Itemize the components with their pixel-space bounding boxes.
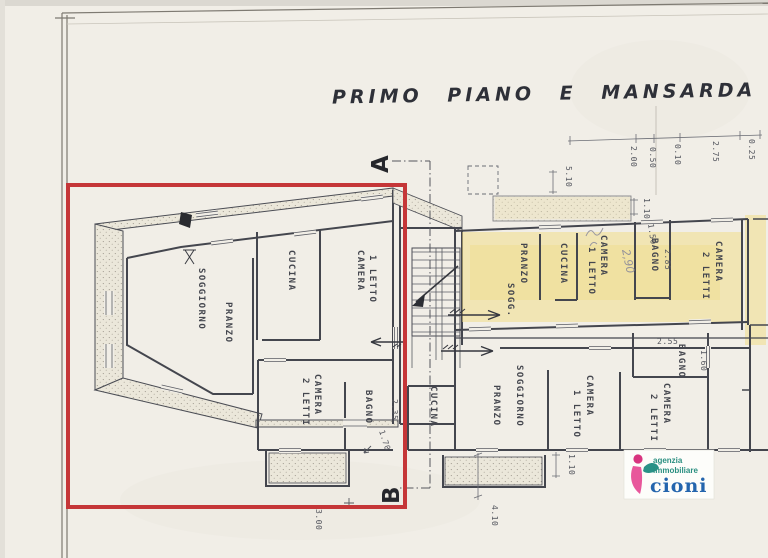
dim-balcony-width: 5.10 [564, 166, 573, 187]
room-label-camera1: CAMERA [598, 235, 608, 277]
dim-right: 4.10 [490, 505, 499, 526]
room-label-soggiorno: SOGGIORNO [196, 268, 206, 330]
dim-bagno-width: 2.35 [390, 399, 399, 420]
room-label-camera1: CAMERA [584, 375, 594, 417]
logo-text-cioni: cioni [650, 475, 708, 497]
room-label-camera1-sub: 1 LETTO [571, 390, 581, 438]
room-label-camera1: CAMERA [355, 250, 365, 292]
room-label-pranzo: PRANZO [518, 243, 528, 285]
room-label-camera2-sub: 2 LETTI [648, 394, 658, 442]
balcony-top-apartment [493, 196, 631, 221]
dim-top-4: 2.75 [711, 141, 720, 162]
dim-top-5: 0.25 [747, 139, 756, 160]
room-label-pranzo: PRANZO [223, 302, 233, 344]
logo-text-immobiliare: immobiliare [653, 466, 698, 475]
floor-plan-svg: PRIMO PIANO E MANSARDA [0, 0, 768, 558]
balcony-left-apartment [269, 453, 346, 483]
section-marker-b: B [379, 486, 405, 504]
room-label-bagno: BAGNO [363, 390, 373, 425]
dim-left: 3.00 [314, 509, 323, 530]
room-label-pranzo: PRANZO [491, 385, 501, 427]
dim-top-1: 2.00 [629, 146, 638, 167]
section-marker-a: A [368, 155, 394, 173]
logo-figure-head [633, 454, 642, 463]
room-label-camera1-sub: 1 LETTO [586, 247, 596, 295]
agency-logo: agenzia immobiliare cioni [624, 450, 714, 499]
room-label-sogg: SOGG. [505, 283, 515, 318]
room-label-camera2: CAMERA [312, 374, 322, 416]
scanned-floor-plan-sheet: PRIMO PIANO E MANSARDA [0, 0, 768, 558]
room-label-camera2: CAMERA [713, 241, 723, 283]
dim-balcony-depth: 1.10 [642, 198, 651, 219]
room-label-cucina: CUCINA [286, 250, 296, 292]
logo-text-agenzia: agenzia [653, 456, 683, 465]
dim-bagno: 2.85 [663, 249, 672, 270]
room-label-bagno: BAGNO [676, 344, 686, 379]
balcony-bottom-apartment [445, 457, 542, 485]
dim-top-2: 0.50 [648, 147, 657, 168]
room-label-cucina: CUCINA [428, 386, 438, 428]
dim-balcony: 1.10 [567, 454, 576, 475]
room-label-soggiorno: SOGGIORNO [514, 365, 524, 427]
dim-top-3: 0.10 [673, 144, 682, 165]
room-label-camera1-sub: 1 LETTO [367, 255, 377, 303]
room-label-camera2: CAMERA [661, 383, 671, 425]
room-label-cucina: CUCINA [558, 243, 568, 285]
dim-bagno: 2.55 [657, 337, 678, 346]
room-label-camera2-sub: 2 LETTI [300, 378, 310, 426]
dim-door: 1.60 [699, 350, 708, 371]
room-label-camera2-sub: 2 LETTI [700, 252, 710, 300]
